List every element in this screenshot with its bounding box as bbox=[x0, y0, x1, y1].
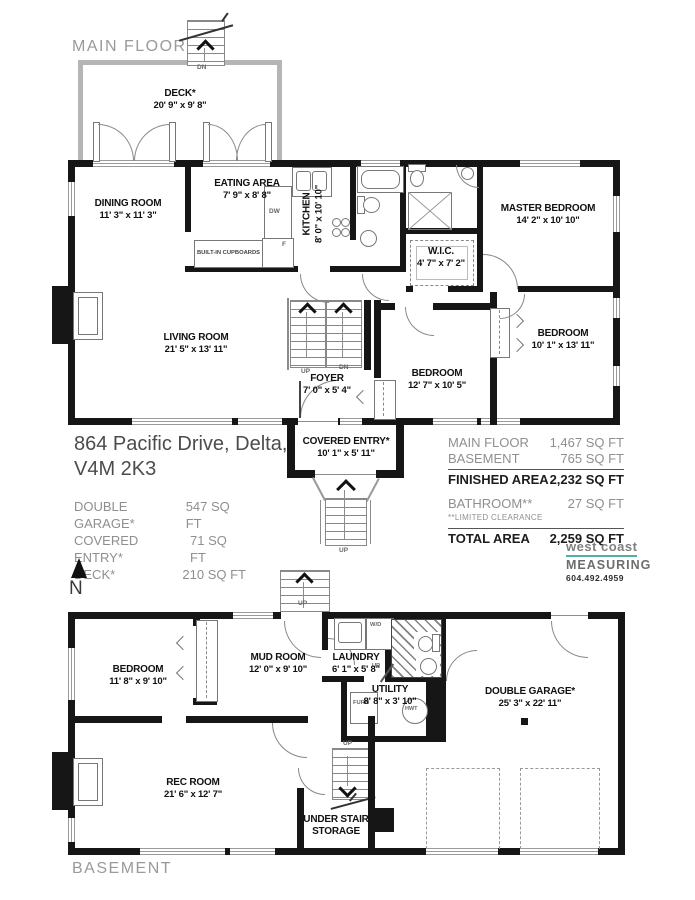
room-label-bedroom2: BEDROOM 12' 7" x 10' 5" bbox=[408, 368, 466, 391]
area-row-finished: FINISHED AREA2,232 SQ FT bbox=[448, 472, 624, 488]
logo-line1: west coast bbox=[566, 539, 637, 557]
garage-door bbox=[520, 848, 598, 855]
up-arrow-icon bbox=[336, 479, 356, 499]
up-label: UP bbox=[298, 600, 307, 607]
door-arc bbox=[483, 254, 518, 289]
area-row: MAIN FLOOR1,467 SQ FT bbox=[448, 435, 624, 451]
dishwasher-label: DW bbox=[269, 208, 280, 215]
bathroom-sink bbox=[420, 658, 437, 675]
wall-segment bbox=[372, 808, 394, 832]
room-label-living: LIVING ROOM 21' 5" x 13' 11" bbox=[163, 332, 228, 355]
bifold-door-icon bbox=[176, 666, 190, 680]
north-label: N bbox=[69, 578, 83, 600]
summary-row: COVERED ENTRY*71 SQ FT bbox=[74, 532, 246, 566]
wall-segment bbox=[490, 356, 497, 425]
bathroom-sink bbox=[360, 230, 377, 247]
up-label: UP bbox=[339, 547, 348, 554]
window bbox=[433, 418, 477, 425]
window bbox=[613, 196, 620, 232]
parking-stall bbox=[426, 768, 500, 849]
toilet-bowl bbox=[418, 636, 433, 652]
toilet-bowl bbox=[363, 197, 380, 213]
garage-post bbox=[521, 718, 528, 725]
summary-row: DECK*210 SQ FT bbox=[74, 566, 246, 583]
closet bbox=[196, 620, 218, 702]
washer-dryer-label: W/D bbox=[370, 622, 381, 628]
bathtub-basin bbox=[361, 170, 400, 189]
window bbox=[68, 818, 75, 842]
main-floor-title: MAIN FLOOR bbox=[72, 38, 187, 56]
door-leaf bbox=[169, 122, 176, 162]
wall-segment bbox=[381, 303, 395, 310]
arrow-stem bbox=[342, 312, 343, 358]
room-label-foyer: FOYER 7' 0" x 5' 4" bbox=[303, 373, 351, 396]
arrow-stem bbox=[306, 312, 307, 358]
toilet-bowl bbox=[410, 170, 424, 187]
wall-segment bbox=[406, 286, 413, 292]
threshold-line bbox=[298, 421, 338, 422]
room-label-deck: DECK* 20' 9" x 9' 8" bbox=[154, 88, 207, 111]
door-opening bbox=[281, 612, 327, 619]
wall-segment bbox=[433, 303, 490, 310]
entry-stairs bbox=[325, 498, 367, 546]
window bbox=[238, 418, 282, 425]
wall-segment bbox=[356, 266, 406, 272]
room-label-master: MASTER BEDROOM 14' 2" x 10' 10" bbox=[501, 203, 595, 226]
fireplace-chimney bbox=[52, 286, 75, 344]
wall-segment bbox=[350, 160, 356, 240]
wall-segment bbox=[185, 160, 191, 232]
dn-label: DN bbox=[339, 364, 348, 371]
threshold-line bbox=[315, 474, 376, 475]
room-label-laundry: LAUNDRY 6' 1" x 5' 8" bbox=[332, 652, 380, 675]
window bbox=[230, 848, 275, 855]
window bbox=[520, 160, 580, 167]
door-arc bbox=[236, 124, 266, 161]
garage-door bbox=[426, 848, 498, 855]
wall-segment bbox=[330, 266, 356, 272]
wall-segment bbox=[287, 470, 315, 478]
stove-burner bbox=[341, 218, 350, 227]
window bbox=[233, 612, 273, 619]
fridge-label: F bbox=[282, 241, 286, 248]
deck-wall bbox=[78, 60, 282, 65]
wall-segment bbox=[341, 736, 446, 742]
window bbox=[132, 418, 232, 425]
arrow-stem bbox=[344, 490, 345, 540]
wall-segment bbox=[490, 292, 497, 308]
room-label-rec-room: REC ROOM 21' 6" x 12' 7" bbox=[164, 777, 222, 800]
door-leaf bbox=[299, 381, 301, 418]
window bbox=[613, 298, 620, 318]
stair-rail bbox=[320, 500, 321, 544]
deck-wall bbox=[277, 60, 282, 162]
bifold-door-icon bbox=[176, 636, 190, 650]
deck-door-opening bbox=[203, 160, 270, 167]
wall-segment bbox=[426, 682, 446, 742]
cupboards-label: BUILT-IN CUPBOARDS bbox=[197, 250, 260, 256]
wall-segment bbox=[68, 716, 162, 723]
wall-segment bbox=[341, 676, 347, 742]
bifold-door-icon bbox=[510, 338, 524, 352]
threshold-line bbox=[551, 615, 588, 616]
arrow-stem bbox=[204, 48, 205, 62]
fireplace-firebox bbox=[78, 297, 98, 335]
room-label-mud-room: MUD ROOM 12' 0" x 9' 10" bbox=[249, 652, 307, 675]
door-arc bbox=[405, 307, 434, 336]
address-line2: V4M 2K3 bbox=[74, 457, 287, 482]
door-arc bbox=[134, 124, 170, 161]
wall-segment bbox=[518, 286, 613, 292]
logo-line2: MEASURING bbox=[566, 558, 651, 572]
stove-burner bbox=[332, 218, 341, 227]
table-rule bbox=[448, 469, 624, 470]
wall-segment bbox=[448, 286, 478, 292]
door-arc bbox=[362, 274, 389, 301]
room-label-utility: UTILITY 8' 8" x 3' 10" bbox=[364, 684, 417, 707]
window bbox=[68, 648, 75, 700]
window bbox=[340, 418, 362, 425]
area-table: MAIN FLOOR1,467 SQ FT BASEMENT765 SQ FT … bbox=[448, 435, 624, 547]
door-arc bbox=[208, 124, 238, 161]
door-arc bbox=[500, 294, 525, 319]
room-label-bedroom3: BEDROOM 10' 1" x 13' 11" bbox=[532, 328, 595, 351]
exterior-area-summary: DOUBLE GARAGE*547 SQ FT COVERED ENTRY*71… bbox=[74, 498, 246, 583]
north-arrow-icon bbox=[71, 558, 87, 578]
door-arc bbox=[446, 650, 477, 681]
step-edge bbox=[366, 478, 380, 502]
room-label-under-stair-storage: UNDER STAIR STORAGE bbox=[303, 814, 368, 837]
window bbox=[481, 418, 520, 425]
table-rule bbox=[448, 528, 624, 529]
laundry-sink-bowl bbox=[338, 622, 362, 643]
closet-dash bbox=[383, 382, 384, 416]
door-arc bbox=[300, 274, 329, 303]
room-label-basement-bedroom: BEDROOM 11' 8" x 9' 10" bbox=[109, 664, 167, 687]
fireplace-firebox bbox=[78, 763, 98, 801]
room-label-covered-entry: COVERED ENTRY* 10' 1" x 5' 11" bbox=[303, 436, 390, 459]
wall-segment bbox=[186, 716, 308, 723]
logo-phone: 604.492.4959 bbox=[566, 573, 651, 583]
limited-clearance-note: **LIMITED CLEARANCE bbox=[448, 510, 624, 526]
stove-burner bbox=[341, 228, 350, 237]
stair-rail bbox=[287, 298, 289, 370]
room-label-wic: W.I.C. 4' 7" x 7' 2" bbox=[417, 246, 465, 269]
area-row: BASEMENT765 SQ FT bbox=[448, 451, 624, 467]
window bbox=[613, 366, 620, 386]
address: 864 Pacific Drive, Delta, V4M 2K3 bbox=[74, 432, 287, 482]
step-edge bbox=[312, 477, 326, 501]
corner-sink-bowl bbox=[461, 167, 474, 180]
toilet-tank bbox=[432, 634, 440, 652]
bifold-door-icon bbox=[356, 390, 370, 404]
room-label-eating: EATING AREA 7' 9" x 8' 8" bbox=[214, 178, 280, 201]
address-line1: 864 Pacific Drive, Delta, bbox=[74, 432, 287, 457]
wall-segment bbox=[376, 470, 404, 478]
room-label-dining: DINING ROOM 11' 3" x 11' 3" bbox=[95, 198, 162, 221]
fridge bbox=[262, 238, 294, 268]
shower-icon bbox=[408, 192, 452, 230]
window bbox=[68, 182, 75, 216]
door-leaf bbox=[265, 122, 272, 162]
room-label-kitchen: KITCHEN 8' 0" x 10' 10" bbox=[302, 185, 325, 243]
arrow-stem bbox=[347, 756, 348, 786]
stove-burner bbox=[332, 228, 341, 237]
room-label-garage: DOUBLE GARAGE* 25' 3" x 22' 11" bbox=[485, 686, 575, 709]
door-arc bbox=[272, 723, 307, 758]
deck-wall bbox=[78, 60, 83, 162]
measuring-company-logo: west coast MEASURING 604.492.4959 bbox=[566, 538, 651, 583]
wall-segment bbox=[618, 612, 625, 855]
wall-segment bbox=[364, 300, 371, 370]
deck-door-opening bbox=[93, 160, 174, 167]
bifold-door-icon bbox=[510, 314, 524, 328]
closet bbox=[374, 380, 396, 420]
window bbox=[140, 848, 225, 855]
closet-dash bbox=[206, 622, 207, 698]
parking-stall bbox=[520, 768, 600, 849]
dn-label: DN bbox=[197, 64, 206, 71]
door-arc bbox=[551, 621, 588, 658]
stair-rail bbox=[370, 500, 371, 544]
fireplace-chimney bbox=[52, 752, 75, 810]
floorplan-canvas: MAIN FLOOR DECK* 20' 9" x 9' 8" DN bbox=[0, 0, 695, 900]
door-arc bbox=[98, 124, 134, 161]
wall-segment bbox=[374, 300, 381, 378]
up-label: UP bbox=[343, 740, 352, 747]
summary-row: DOUBLE GARAGE*547 SQ FT bbox=[74, 498, 246, 532]
basement-title: BASEMENT bbox=[72, 860, 172, 878]
